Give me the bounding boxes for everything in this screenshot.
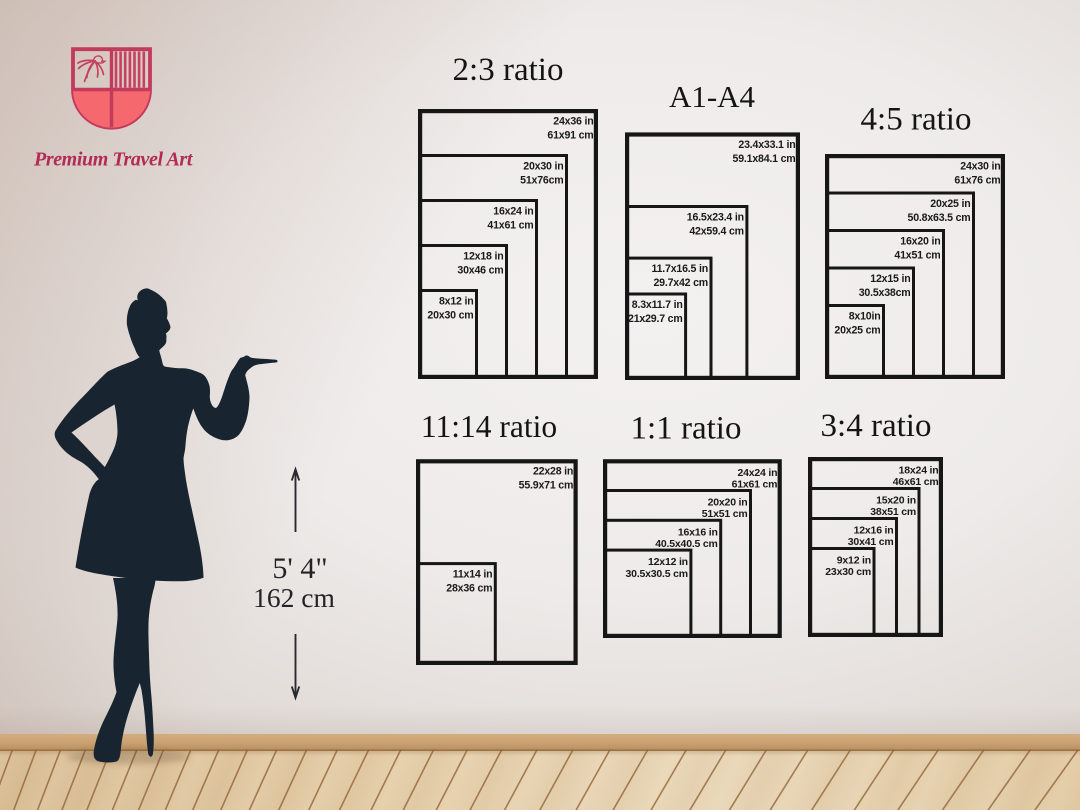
- svg-text:24x30 in: 24x30 in: [960, 161, 1000, 173]
- svg-text:12x18 in: 12x18 in: [463, 251, 503, 263]
- svg-text:22x28 in: 22x28 in: [533, 466, 573, 478]
- svg-text:24x36 in: 24x36 in: [553, 116, 593, 128]
- svg-text:51x51 cm: 51x51 cm: [702, 508, 748, 520]
- svg-text:Premium Travel Art: Premium Travel Art: [33, 149, 194, 171]
- svg-text:12x12 in: 12x12 in: [648, 556, 688, 568]
- svg-text:30x41 cm: 30x41 cm: [848, 536, 894, 548]
- svg-text:11:14 ratio: 11:14 ratio: [421, 409, 557, 444]
- svg-text:51x76cm: 51x76cm: [520, 174, 563, 186]
- svg-text:4:5 ratio: 4:5 ratio: [861, 102, 972, 138]
- svg-text:29.7x42 cm: 29.7x42 cm: [653, 277, 708, 289]
- svg-text:40.5x40.5 cm: 40.5x40.5 cm: [655, 538, 717, 550]
- svg-text:61x91 cm: 61x91 cm: [547, 129, 593, 141]
- svg-text:11x14 in: 11x14 in: [453, 569, 493, 581]
- svg-text:28x36 cm: 28x36 cm: [446, 583, 492, 595]
- svg-text:8.3x11.7 in: 8.3x11.7 in: [632, 299, 683, 311]
- svg-text:8x10in: 8x10in: [849, 311, 881, 323]
- svg-text:162 cm: 162 cm: [253, 582, 335, 613]
- svg-text:42x59.4 cm: 42x59.4 cm: [689, 225, 744, 237]
- svg-text:16x24 in: 16x24 in: [493, 206, 533, 218]
- svg-text:30.5x38cm: 30.5x38cm: [859, 287, 911, 299]
- svg-text:46x61 cm: 46x61 cm: [893, 476, 939, 488]
- svg-text:50.8x63.5 cm: 50.8x63.5 cm: [908, 212, 971, 224]
- svg-text:20x20 in: 20x20 in: [708, 497, 748, 509]
- svg-text:12x16 in: 12x16 in: [854, 525, 894, 537]
- svg-text:20x30 in: 20x30 in: [523, 161, 563, 173]
- svg-text:23x30 cm: 23x30 cm: [825, 566, 871, 578]
- svg-text:20x25 cm: 20x25 cm: [834, 324, 880, 336]
- svg-text:21x29.7 cm: 21x29.7 cm: [628, 313, 683, 325]
- svg-text:15x20 in: 15x20 in: [876, 495, 916, 507]
- svg-text:30.5x30.5 cm: 30.5x30.5 cm: [625, 568, 687, 580]
- svg-text:3:4 ratio: 3:4 ratio: [821, 408, 932, 444]
- svg-text:1:1 ratio: 1:1 ratio: [631, 411, 742, 447]
- svg-text:2:3 ratio: 2:3 ratio: [453, 52, 564, 88]
- svg-text:20x30 cm: 20x30 cm: [427, 309, 473, 321]
- svg-text:41x61 cm: 41x61 cm: [487, 219, 533, 231]
- svg-text:38x51 cm: 38x51 cm: [870, 506, 916, 518]
- svg-text:12x15 in: 12x15 in: [870, 273, 910, 285]
- svg-text:18x24 in: 18x24 in: [899, 465, 939, 477]
- svg-text:41x51 cm: 41x51 cm: [894, 249, 940, 261]
- svg-text:8x12 in: 8x12 in: [439, 296, 474, 308]
- svg-text:11.7x16.5 in: 11.7x16.5 in: [651, 263, 708, 275]
- svg-text:61x61 cm: 61x61 cm: [732, 478, 778, 490]
- svg-text:16x20 in: 16x20 in: [900, 236, 940, 248]
- svg-text:5' 4": 5' 4": [272, 552, 327, 585]
- svg-text:23.4x33.1 in: 23.4x33.1 in: [738, 139, 795, 151]
- svg-text:9x12 in: 9x12 in: [837, 555, 871, 567]
- svg-text:55.9x71 cm: 55.9x71 cm: [519, 480, 574, 492]
- svg-text:61x76 cm: 61x76 cm: [954, 174, 1000, 186]
- svg-text:30x46 cm: 30x46 cm: [457, 264, 503, 276]
- svg-text:A1-A4: A1-A4: [669, 79, 756, 114]
- svg-text:59.1x84.1 cm: 59.1x84.1 cm: [733, 153, 796, 165]
- svg-text:24x24 in: 24x24 in: [737, 467, 777, 479]
- svg-text:16.5x23.4 in: 16.5x23.4 in: [687, 212, 744, 224]
- svg-text:16x16 in: 16x16 in: [678, 526, 718, 538]
- svg-text:20x25 in: 20x25 in: [930, 198, 970, 210]
